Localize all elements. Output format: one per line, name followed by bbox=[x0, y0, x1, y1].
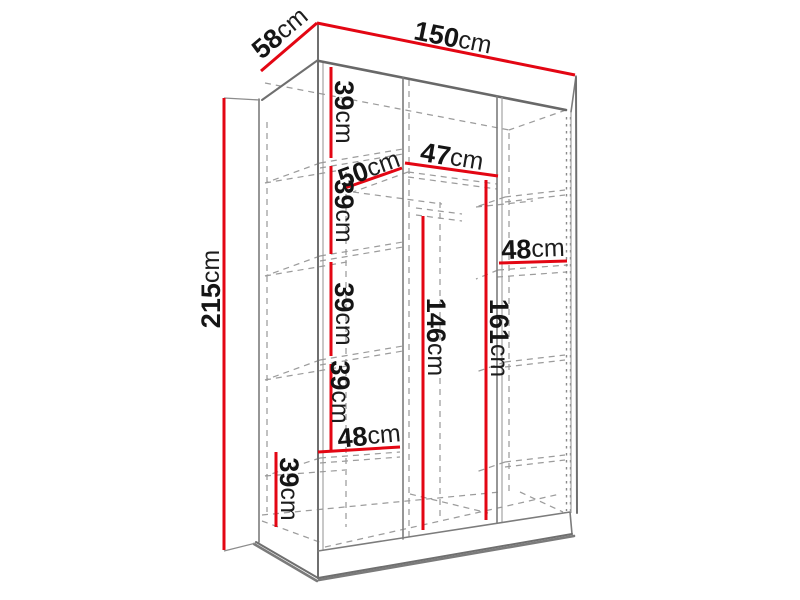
dim-label-left-shelf-1: 39cm bbox=[329, 80, 359, 143]
dim-label-left-shelf-4: 39cm bbox=[325, 360, 355, 423]
front-right-edge bbox=[576, 77, 577, 513]
diagram-canvas: 150cm 58cm 215cm 39cm 39cm 39cm 39cm 39c… bbox=[0, 0, 800, 600]
height-witness-lines bbox=[224, 98, 260, 551]
wardrobe-dimension-diagram: 150cm 58cm 215cm 39cm 39cm 39cm 39cm 39c… bbox=[0, 0, 800, 600]
dim-label-rail-height: 146cm bbox=[421, 298, 451, 376]
wardrobe-body-fills bbox=[256, 26, 576, 578]
dim-label-height: 215cm bbox=[196, 250, 226, 328]
dim-label-right-width: 48cm bbox=[501, 233, 565, 265]
dim-label-bottom-shelf: 39cm bbox=[274, 457, 304, 520]
dim-label-middle-height: 161cm bbox=[484, 299, 514, 377]
dim-label-left-shelf-3: 39cm bbox=[329, 282, 359, 345]
